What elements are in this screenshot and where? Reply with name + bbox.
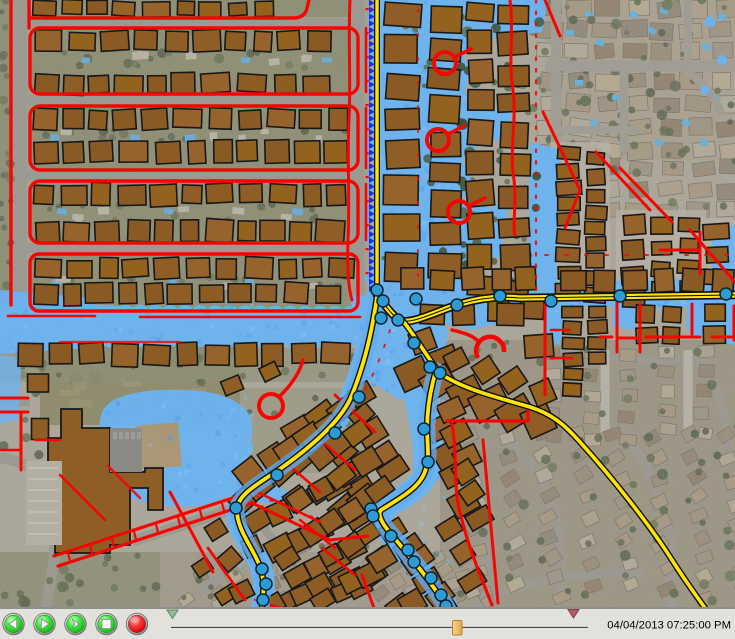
svg-text:04/04/2013 07:25:00 PM: 04/04/2013 07:25:00 PM	[607, 620, 731, 632]
